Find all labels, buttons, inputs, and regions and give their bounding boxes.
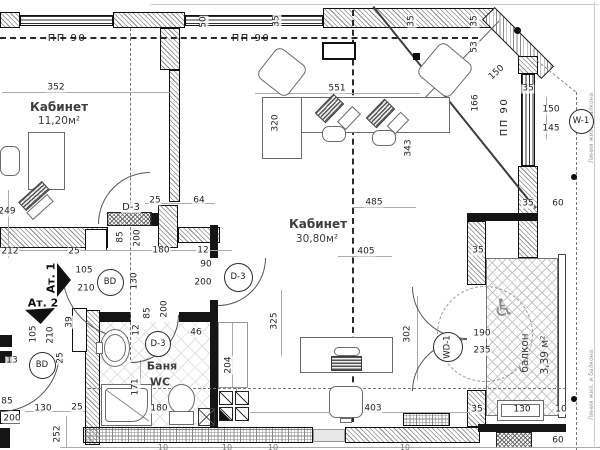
dimension-label: 145 bbox=[541, 125, 560, 134]
window-office-small bbox=[20, 15, 113, 26]
dimension-label: 405 bbox=[356, 248, 375, 257]
room-label-office-small: Кабинет bbox=[30, 100, 88, 114]
door-tag-wd1-balcony: WD-1 bbox=[433, 332, 463, 362]
balcony-bottom-hatch bbox=[496, 432, 532, 448]
apartment-entry-label: Ат. 1 bbox=[46, 262, 57, 295]
dimension-label: 35 bbox=[521, 200, 534, 209]
room-label-office-large: Кабинет bbox=[289, 217, 347, 231]
dimension-label: 252 bbox=[54, 424, 63, 443]
dimension-label: 10 bbox=[157, 444, 169, 450]
dimension-line bbox=[150, 4, 598, 5]
dimension-label: 302 bbox=[404, 324, 413, 343]
dimension-label: 105 bbox=[74, 267, 93, 276]
edge-note: Линия жил. и балкона bbox=[589, 349, 595, 422]
door-tag-d3-bath-text: D-3 bbox=[150, 339, 165, 349]
dimension-label: 35 bbox=[470, 406, 483, 415]
door-tag-bd-1: BD bbox=[97, 269, 124, 296]
wall-fragment bbox=[0, 428, 10, 448]
dimension-label: 551 bbox=[327, 85, 346, 94]
wheelchair-accessibility-icon: ♿ bbox=[493, 296, 515, 320]
dimension-label: 210 bbox=[47, 325, 56, 344]
dimension-label: 180 bbox=[149, 405, 168, 414]
dimension-line bbox=[281, 290, 282, 356]
dimension-label: 200 bbox=[2, 415, 21, 424]
window-tag-w1-text: W-1 bbox=[573, 116, 590, 126]
faucet bbox=[96, 342, 103, 354]
door-tag-bd-2: BD bbox=[29, 352, 56, 379]
node-dot bbox=[514, 27, 521, 34]
dimension-label: 53 bbox=[471, 40, 480, 53]
entry-arrow-at2 bbox=[25, 308, 55, 324]
washer-unit bbox=[219, 407, 233, 421]
balcony-bottom-rail bbox=[478, 424, 566, 432]
door-tag-bd-2-text: BD bbox=[36, 360, 48, 370]
dimension-label: 50 bbox=[200, 15, 209, 28]
dimension-label: 200 bbox=[193, 279, 212, 288]
dimension-label: 180 bbox=[151, 247, 170, 256]
wall-segment bbox=[160, 28, 180, 70]
dimension-line bbox=[60, 447, 600, 448]
door-tag-d3-room-text: D-3 bbox=[230, 272, 245, 282]
bathroom-top-wall bbox=[179, 312, 218, 322]
door-tag-bd-1-text: BD bbox=[104, 277, 116, 287]
dimension-label: 35 bbox=[471, 14, 480, 27]
window-type-label: ПП 90 bbox=[47, 34, 87, 44]
dimension-label: 10 bbox=[554, 406, 567, 415]
dimension-label: 25 bbox=[67, 248, 80, 257]
dimension-label: 90 bbox=[199, 261, 212, 270]
dimension-label: 130 bbox=[131, 271, 140, 290]
bottom-wall bbox=[83, 427, 313, 443]
wall-segment bbox=[113, 12, 185, 28]
armchair bbox=[415, 40, 474, 99]
dimension-label: 204 bbox=[225, 355, 234, 374]
node-dot bbox=[571, 396, 577, 402]
dimension-label: 150 bbox=[487, 63, 507, 83]
apartment-entry-label: Ат. 2 bbox=[27, 298, 60, 309]
room-area-office-large: 30,80м² bbox=[296, 233, 338, 245]
desk-return bbox=[262, 97, 302, 159]
dimension-label: 105 bbox=[30, 324, 39, 343]
bottom-wall bbox=[345, 427, 480, 443]
dimension-line bbox=[2, 92, 170, 93]
wall-step bbox=[85, 229, 107, 251]
dimension-label: 35 bbox=[471, 247, 484, 256]
dimension-label: 343 bbox=[405, 138, 414, 157]
dimension-label: 46 bbox=[189, 329, 202, 338]
dimension-label: 249 bbox=[0, 208, 17, 217]
chair-base bbox=[340, 418, 352, 423]
dimension-label: 166 bbox=[472, 93, 481, 112]
balcony-right-rail bbox=[558, 254, 566, 418]
dimension-label: 64 bbox=[192, 197, 205, 206]
window-type-label: ПП 90 bbox=[231, 34, 271, 44]
dimension-line bbox=[352, 207, 416, 208]
dimension-label: 150 bbox=[541, 106, 560, 115]
office-chair bbox=[329, 386, 363, 418]
wall-segment bbox=[210, 225, 218, 258]
washer-unit bbox=[235, 391, 249, 405]
dimension-label: 352 bbox=[46, 84, 65, 93]
dimension-label: 60 bbox=[551, 200, 564, 209]
side-table bbox=[322, 42, 356, 60]
dimension-label: 13 bbox=[5, 357, 18, 366]
dimension-label: 235 bbox=[472, 347, 491, 356]
dimension-label: 12 bbox=[196, 247, 209, 256]
monitor bbox=[334, 347, 360, 356]
chair bbox=[322, 126, 346, 142]
room-label-bathroom-wc: WC bbox=[150, 376, 170, 389]
window-tag-w1: W-1 bbox=[569, 109, 594, 134]
room-area-office-small: 11,20м² bbox=[38, 115, 80, 127]
chair bbox=[0, 146, 20, 176]
dimension-line bbox=[66, 416, 67, 448]
dimension-label: 10 bbox=[399, 444, 411, 450]
dimension-label: 85 bbox=[0, 398, 13, 407]
dimension-label: 130 bbox=[33, 405, 52, 414]
desk bbox=[28, 132, 65, 190]
chair bbox=[372, 130, 396, 146]
window-type-label: ПП 90 bbox=[500, 97, 510, 137]
wall-connector bbox=[467, 213, 537, 221]
boiler bbox=[198, 408, 215, 426]
toilet-bowl bbox=[168, 384, 195, 414]
threshold bbox=[313, 429, 345, 442]
dimension-label: 200 bbox=[134, 228, 143, 247]
dimension-label: 12 bbox=[133, 323, 142, 336]
floor-plan-canvas: ♿ Кабинет 11,20м² Кабинет 30,80м² Баня W… bbox=[0, 0, 600, 450]
door-tag-d3-bath: D-3 bbox=[145, 331, 171, 357]
dimension-label: 190 bbox=[472, 330, 491, 339]
dimension-label: 171 bbox=[132, 377, 141, 396]
room-label-balcony: балкон bbox=[519, 333, 531, 372]
wall-segment bbox=[169, 70, 180, 202]
armchair bbox=[255, 45, 308, 98]
node-dot bbox=[571, 174, 577, 180]
dimension-label: 25 bbox=[148, 197, 161, 206]
door-tag-wd1-balcony-text: WD-1 bbox=[443, 335, 453, 358]
dimension-label: 485 bbox=[364, 199, 383, 208]
door-arc bbox=[98, 172, 150, 224]
section-marker bbox=[413, 53, 420, 60]
wall-segment bbox=[518, 56, 538, 74]
dimension-label: 325 bbox=[271, 311, 280, 330]
dimension-label: 35 bbox=[408, 14, 417, 27]
room-label-bathroom: Баня bbox=[147, 360, 177, 373]
radiator bbox=[403, 413, 450, 426]
wall-segment bbox=[0, 12, 20, 28]
dimension-label: 10 bbox=[221, 444, 233, 450]
room-area-balcony: 3,39 м² bbox=[539, 336, 551, 375]
door-label-d3: D-3 bbox=[121, 203, 141, 213]
dimension-label: 35 bbox=[273, 14, 282, 27]
dimension-label: 212 bbox=[0, 248, 19, 257]
door-tag-d3-room: D-3 bbox=[224, 263, 253, 292]
sink-basin bbox=[104, 334, 126, 362]
wall-segment bbox=[158, 205, 178, 248]
dimension-label: 200 bbox=[161, 299, 170, 318]
dimension-label: 60 bbox=[551, 437, 564, 446]
dimension-label: 320 bbox=[272, 113, 281, 132]
wall-fragment bbox=[0, 335, 12, 347]
washer-unit bbox=[235, 407, 249, 421]
dimension-label: 25 bbox=[57, 351, 66, 364]
dimension-label: 130 bbox=[512, 406, 531, 415]
dimension-label: 210 bbox=[76, 285, 95, 294]
dimension-label: 10 bbox=[267, 444, 279, 450]
dimension-label: 25 bbox=[70, 404, 83, 413]
keyboard bbox=[331, 356, 362, 371]
dimension-label: 39 bbox=[66, 315, 75, 328]
dimension-label: 85 bbox=[117, 230, 126, 243]
toilet-tank bbox=[169, 411, 194, 425]
dimension-label: 85 bbox=[144, 306, 153, 319]
dimension-label: 403 bbox=[363, 405, 382, 414]
washer-unit bbox=[219, 391, 233, 405]
dimension-label: 35 bbox=[521, 85, 534, 94]
